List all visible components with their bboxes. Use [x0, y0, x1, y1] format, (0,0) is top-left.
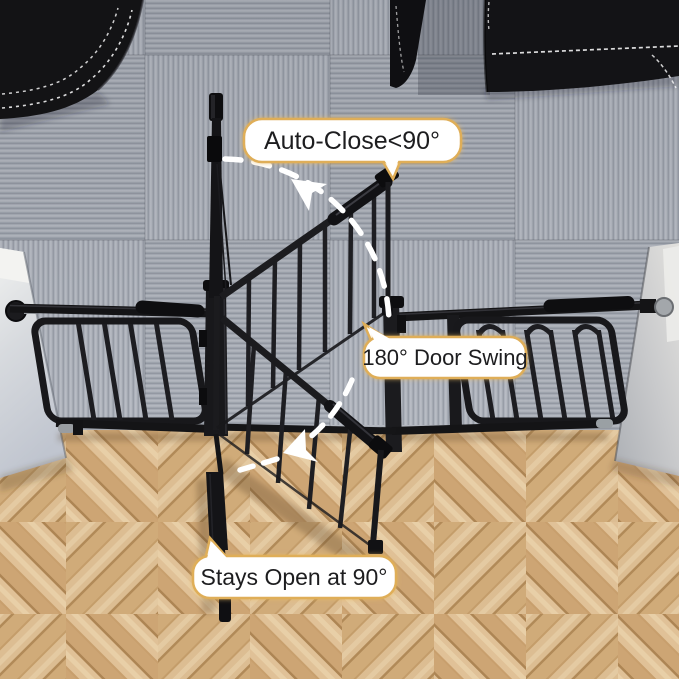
telescoping-tube — [550, 303, 628, 307]
auto-close-label-text: Auto-Close<90° — [264, 127, 440, 155]
pressure-bolt-right-top — [655, 298, 673, 316]
pressure-bolt-left-bottom — [58, 424, 75, 433]
stays-open-label-text: Stays Open at 90° — [201, 564, 388, 590]
door-swing-label-text: 180° Door Swing — [362, 345, 527, 370]
pressure-bolt-right-bottom — [596, 419, 613, 428]
telescoping-tube — [142, 307, 198, 311]
sofa-right — [390, 0, 679, 100]
product-image: Auto-Close<90° 180° Door Swing Stays Ope… — [0, 0, 679, 679]
scene-canvas: Auto-Close<90° 180° Door Swing Stays Ope… — [0, 0, 679, 679]
